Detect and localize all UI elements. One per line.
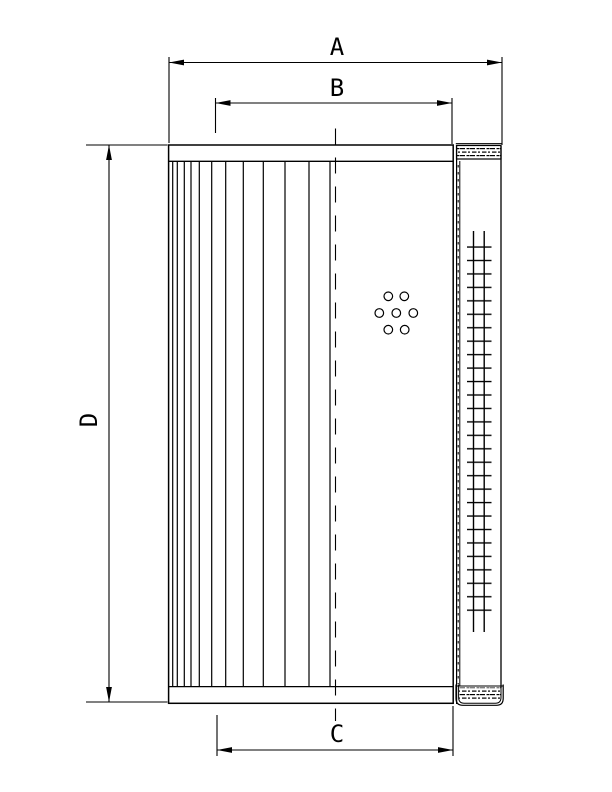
filter-side-view xyxy=(456,144,503,706)
shell-bottom-endcap xyxy=(456,685,503,706)
dimension-d-label: D xyxy=(75,413,103,427)
dimension-c-label: C xyxy=(330,720,344,748)
filter-body-section xyxy=(169,129,454,722)
arrowhead-left-icon xyxy=(216,100,231,106)
arrowhead-down-icon xyxy=(106,687,112,702)
arrowhead-right-icon xyxy=(438,747,453,753)
shell-top-endcap xyxy=(456,144,503,159)
shell-top-endcap-body xyxy=(457,146,502,160)
arrowhead-left-icon xyxy=(169,60,184,66)
arrowhead-left-icon xyxy=(217,747,232,753)
dimension-d: D xyxy=(75,145,168,702)
arrowhead-right-icon xyxy=(437,100,452,106)
arrowhead-up-icon xyxy=(106,145,112,160)
dimension-b: B xyxy=(216,74,453,144)
mesh-rungs xyxy=(467,241,492,618)
filter-element-drawing: A B C D xyxy=(0,0,612,792)
shell-bottom-endcap-fill xyxy=(459,688,502,702)
arrowhead-right-icon xyxy=(487,60,502,66)
dimension-a-label: A xyxy=(330,33,345,61)
mesh-pattern xyxy=(467,231,492,632)
dimension-b-label: B xyxy=(330,74,344,102)
drawing-page: A B C D xyxy=(0,0,612,792)
